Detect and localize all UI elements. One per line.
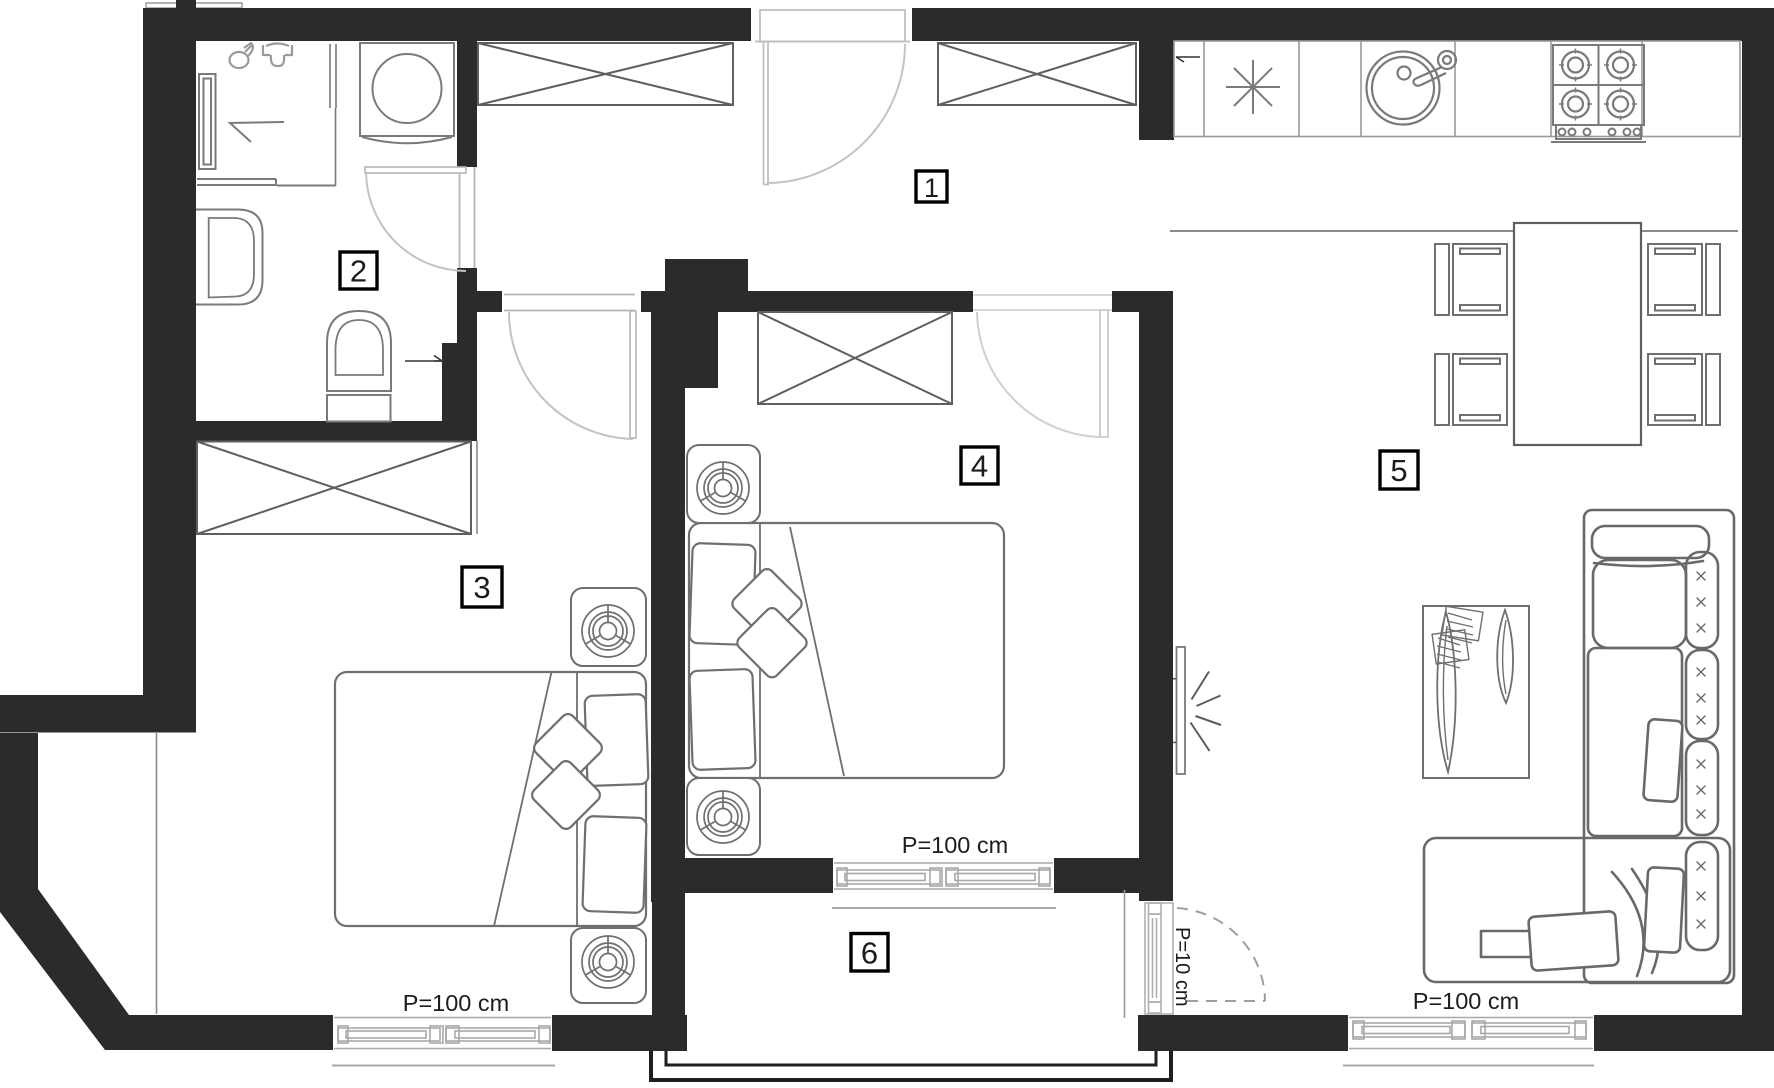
svg-text:5: 5 (1390, 453, 1407, 488)
svg-text:P=10 cm: P=10 cm (1171, 927, 1193, 1006)
svg-text:4: 4 (971, 449, 988, 484)
svg-text:6: 6 (861, 936, 878, 971)
svg-text:P=100 cm: P=100 cm (902, 832, 1008, 858)
svg-text:1: 1 (924, 173, 939, 203)
svg-text:2: 2 (350, 254, 367, 289)
svg-text:3: 3 (473, 570, 490, 605)
svg-text:P=100 cm: P=100 cm (403, 990, 509, 1016)
svg-text:P=100 cm: P=100 cm (1413, 988, 1519, 1014)
